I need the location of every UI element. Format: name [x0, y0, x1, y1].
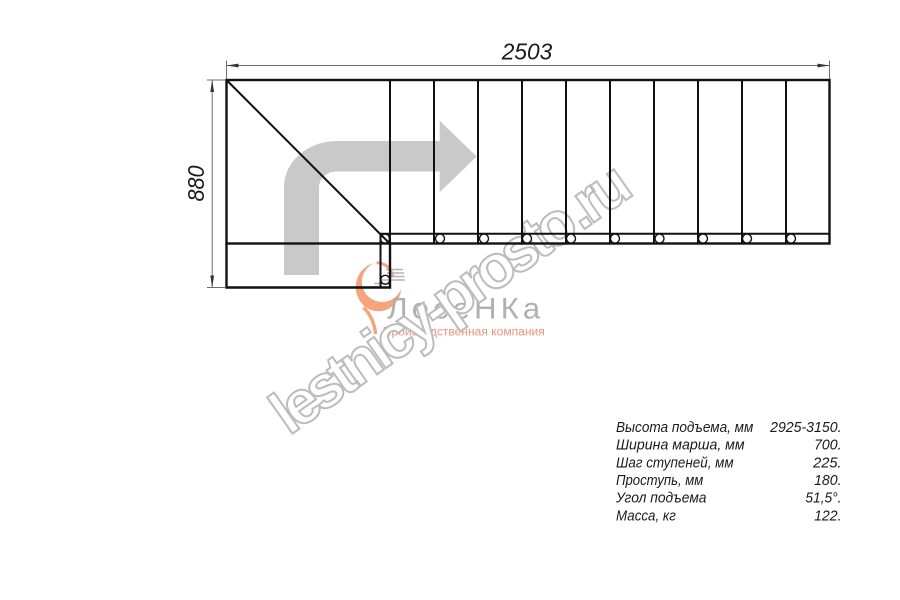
svg-text:Проступь, мм: Проступь, мм	[616, 472, 703, 489]
svg-text:Ширина марша, мм: Ширина марша, мм	[616, 437, 745, 454]
svg-text:Высота подъема, мм: Высота подъема, мм	[616, 419, 753, 436]
svg-text:2925-3150.: 2925-3150.	[769, 419, 841, 436]
svg-text:Масса, кг: Масса, кг	[616, 507, 676, 524]
svg-text:225.: 225.	[812, 454, 841, 471]
svg-text:Шаг ступеней, мм: Шаг ступеней, мм	[616, 454, 734, 471]
svg-text:51,5°.: 51,5°.	[805, 490, 841, 507]
svg-text:880: 880	[183, 166, 209, 202]
svg-text:122.: 122.	[814, 507, 841, 524]
svg-text:Угол подъема: Угол подъема	[615, 490, 706, 507]
svg-text:180.: 180.	[814, 472, 841, 489]
svg-text:2503: 2503	[501, 39, 552, 65]
svg-text:700.: 700.	[814, 437, 841, 454]
